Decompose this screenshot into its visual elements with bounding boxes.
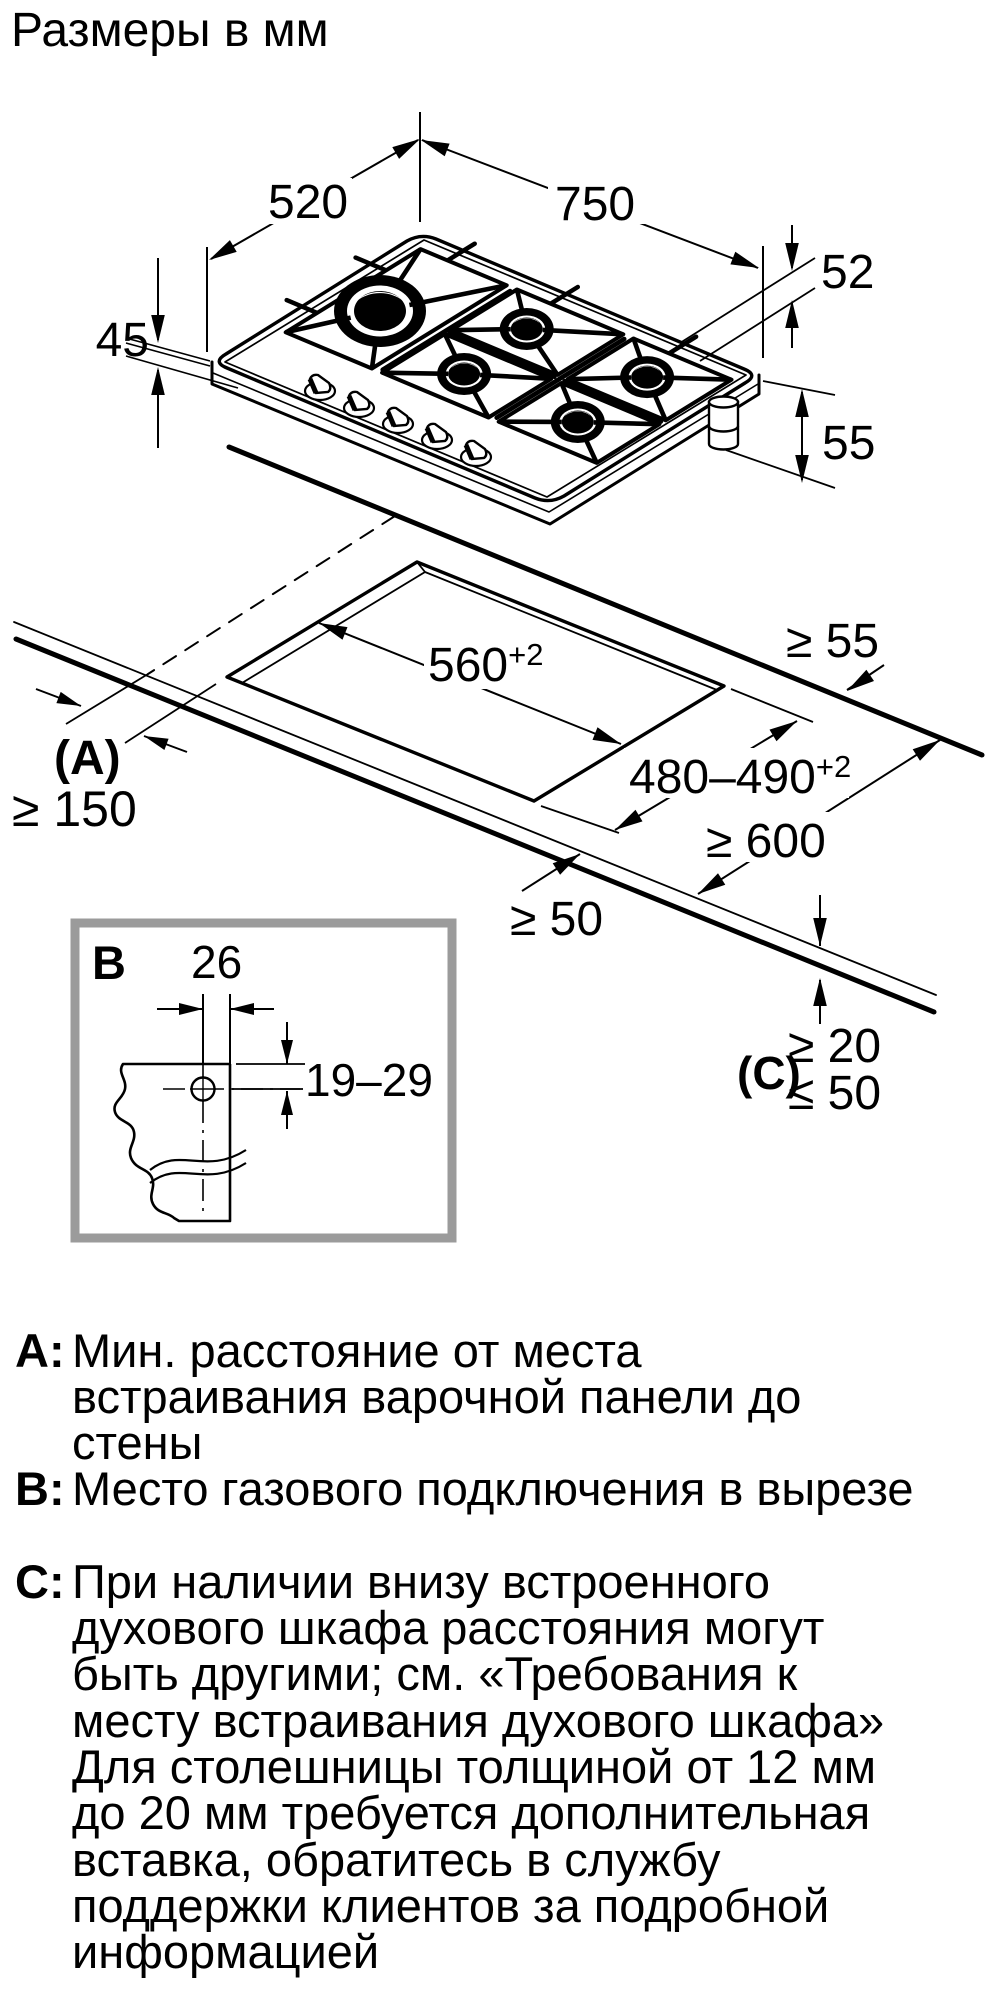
svg-text:≤ 50: ≤ 50 xyxy=(788,1067,881,1120)
svg-text:≥ 600: ≥ 600 xyxy=(706,815,826,868)
svg-text:19–29: 19–29 xyxy=(305,1054,433,1106)
svg-text:Место газового подключения в в: Место газового подключения в вырезе xyxy=(72,1462,914,1515)
svg-text:А:: А: xyxy=(15,1324,65,1377)
svg-text:≥ 20: ≥ 20 xyxy=(788,1020,881,1073)
svg-text:В:: В: xyxy=(15,1462,65,1515)
svg-text:52: 52 xyxy=(821,246,874,299)
svg-text:до 20 мм требуется дополнитель: до 20 мм требуется дополнительная xyxy=(72,1786,870,1839)
svg-text:26: 26 xyxy=(191,936,242,988)
svg-text:(A): (A) xyxy=(54,732,121,785)
svg-text:55: 55 xyxy=(822,417,875,470)
svg-text:быть другими; см. «Требования: быть другими; см. «Требования к xyxy=(72,1647,798,1700)
svg-text:≥ 150: ≥ 150 xyxy=(12,781,137,837)
svg-text:Размеры в мм: Размеры в мм xyxy=(11,4,329,57)
svg-text:информацией: информацией xyxy=(72,1925,379,1978)
svg-text:≥ 55: ≥ 55 xyxy=(786,615,879,668)
svg-text:B: B xyxy=(92,936,126,989)
svg-text:520: 520 xyxy=(268,176,348,229)
svg-text:С:: С: xyxy=(15,1555,65,1608)
svg-text:≥ 50: ≥ 50 xyxy=(510,893,603,946)
svg-text:45: 45 xyxy=(96,314,149,367)
svg-text:750: 750 xyxy=(555,178,635,231)
